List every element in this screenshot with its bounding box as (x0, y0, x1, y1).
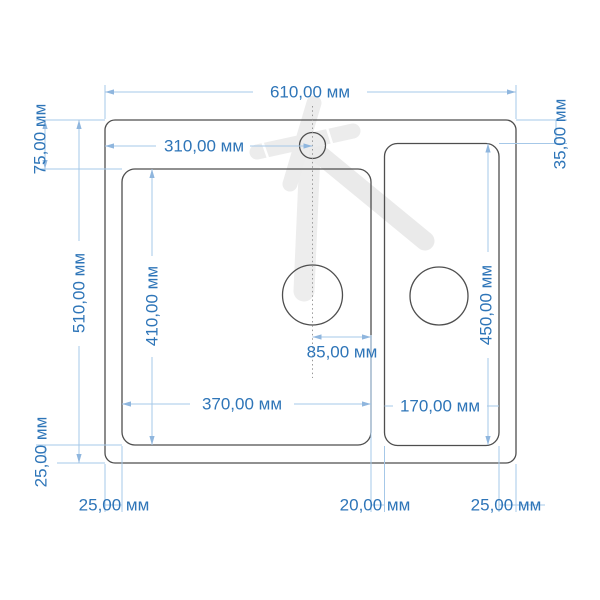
dim-label-left-bowl-width: 370,00 мм (202, 395, 282, 414)
dim-label-bowl-gap: 20,00 мм (340, 496, 411, 515)
dim-label-drain-offset: 85,00 мм (307, 343, 378, 362)
watermark-bar (304, 153, 310, 291)
watermark-faucet-logo (257, 103, 425, 291)
dim-label-left-bowl-depth: 410,00 мм (143, 266, 162, 346)
dim-label-deck-top-left: 75,00 мм (31, 104, 50, 175)
dim-label-deck-top-right: 35,00 мм (551, 99, 570, 170)
dim-label-right-bowl-depth: 450,00 мм (477, 265, 496, 345)
dim-label-right-bowl-width: 170,00 мм (400, 397, 480, 416)
dim-label-margin-left: 25,00 мм (79, 496, 150, 515)
dim-label-margin-right: 25,00 мм (471, 496, 542, 515)
dim-label-total-depth: 510,00 мм (70, 253, 89, 333)
right-drain-hole (410, 267, 468, 325)
drawing-canvas: 610,00 мм 310,00 мм 35,00 мм 75,00 мм 51… (0, 0, 600, 600)
sink-technical-drawing: 610,00 мм 310,00 мм 35,00 мм 75,00 мм 51… (0, 0, 600, 600)
dim-label-margin-bottom: 25,00 мм (32, 417, 51, 488)
dim-label-total-width: 610,00 мм (270, 83, 350, 102)
dim-label-faucet-offset: 310,00 мм (164, 137, 244, 156)
